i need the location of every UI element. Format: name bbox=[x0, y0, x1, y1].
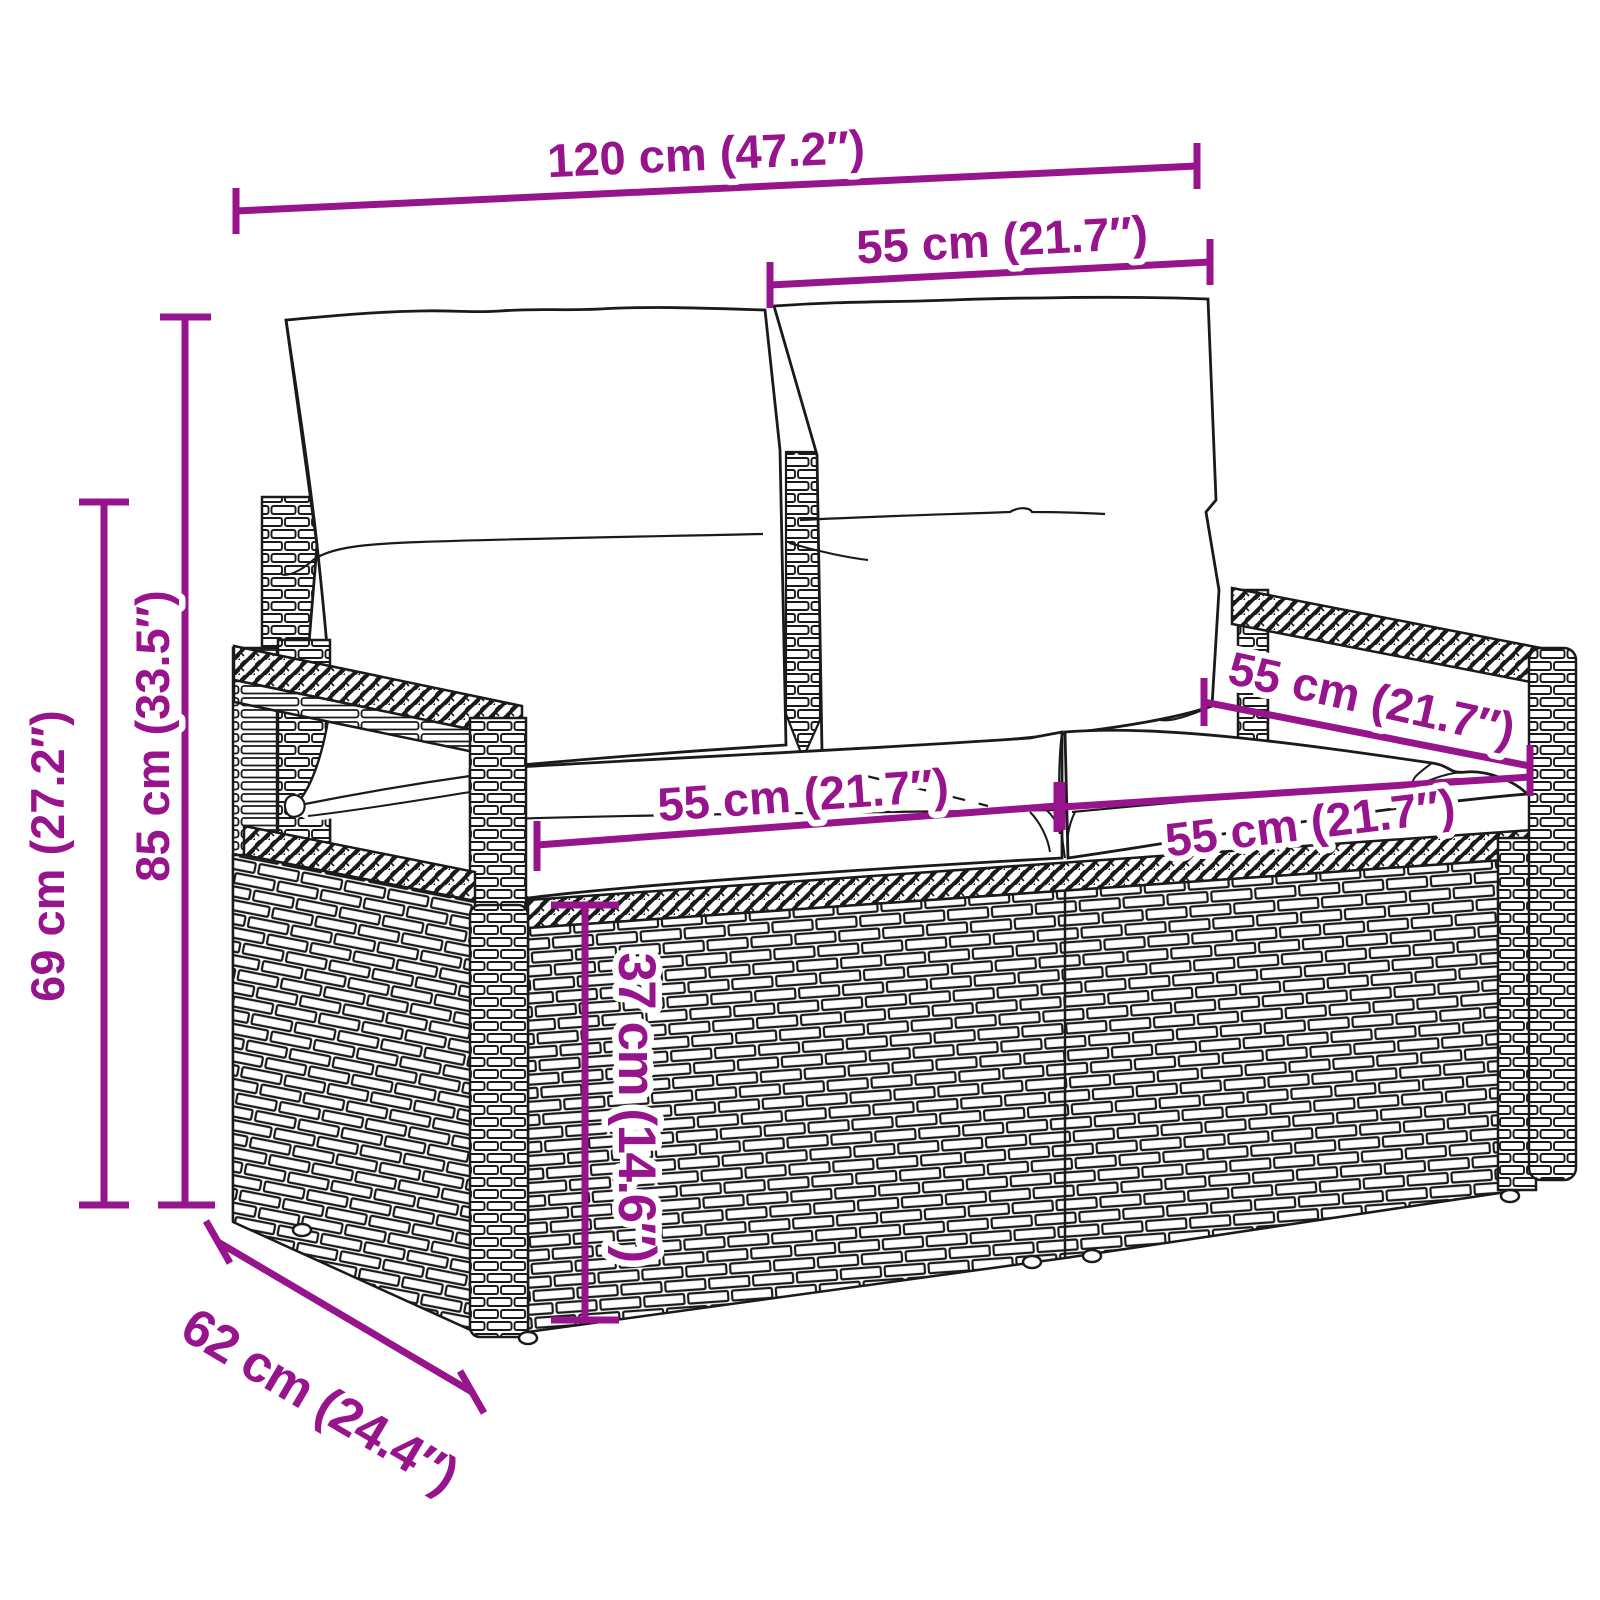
svg-text:37 cm (14.6″): 37 cm (14.6″) bbox=[607, 952, 666, 1261]
svg-text:69 cm (27.2″): 69 cm (27.2″) bbox=[21, 710, 74, 1002]
svg-text:85 cm (33.5″): 85 cm (33.5″) bbox=[126, 590, 179, 882]
